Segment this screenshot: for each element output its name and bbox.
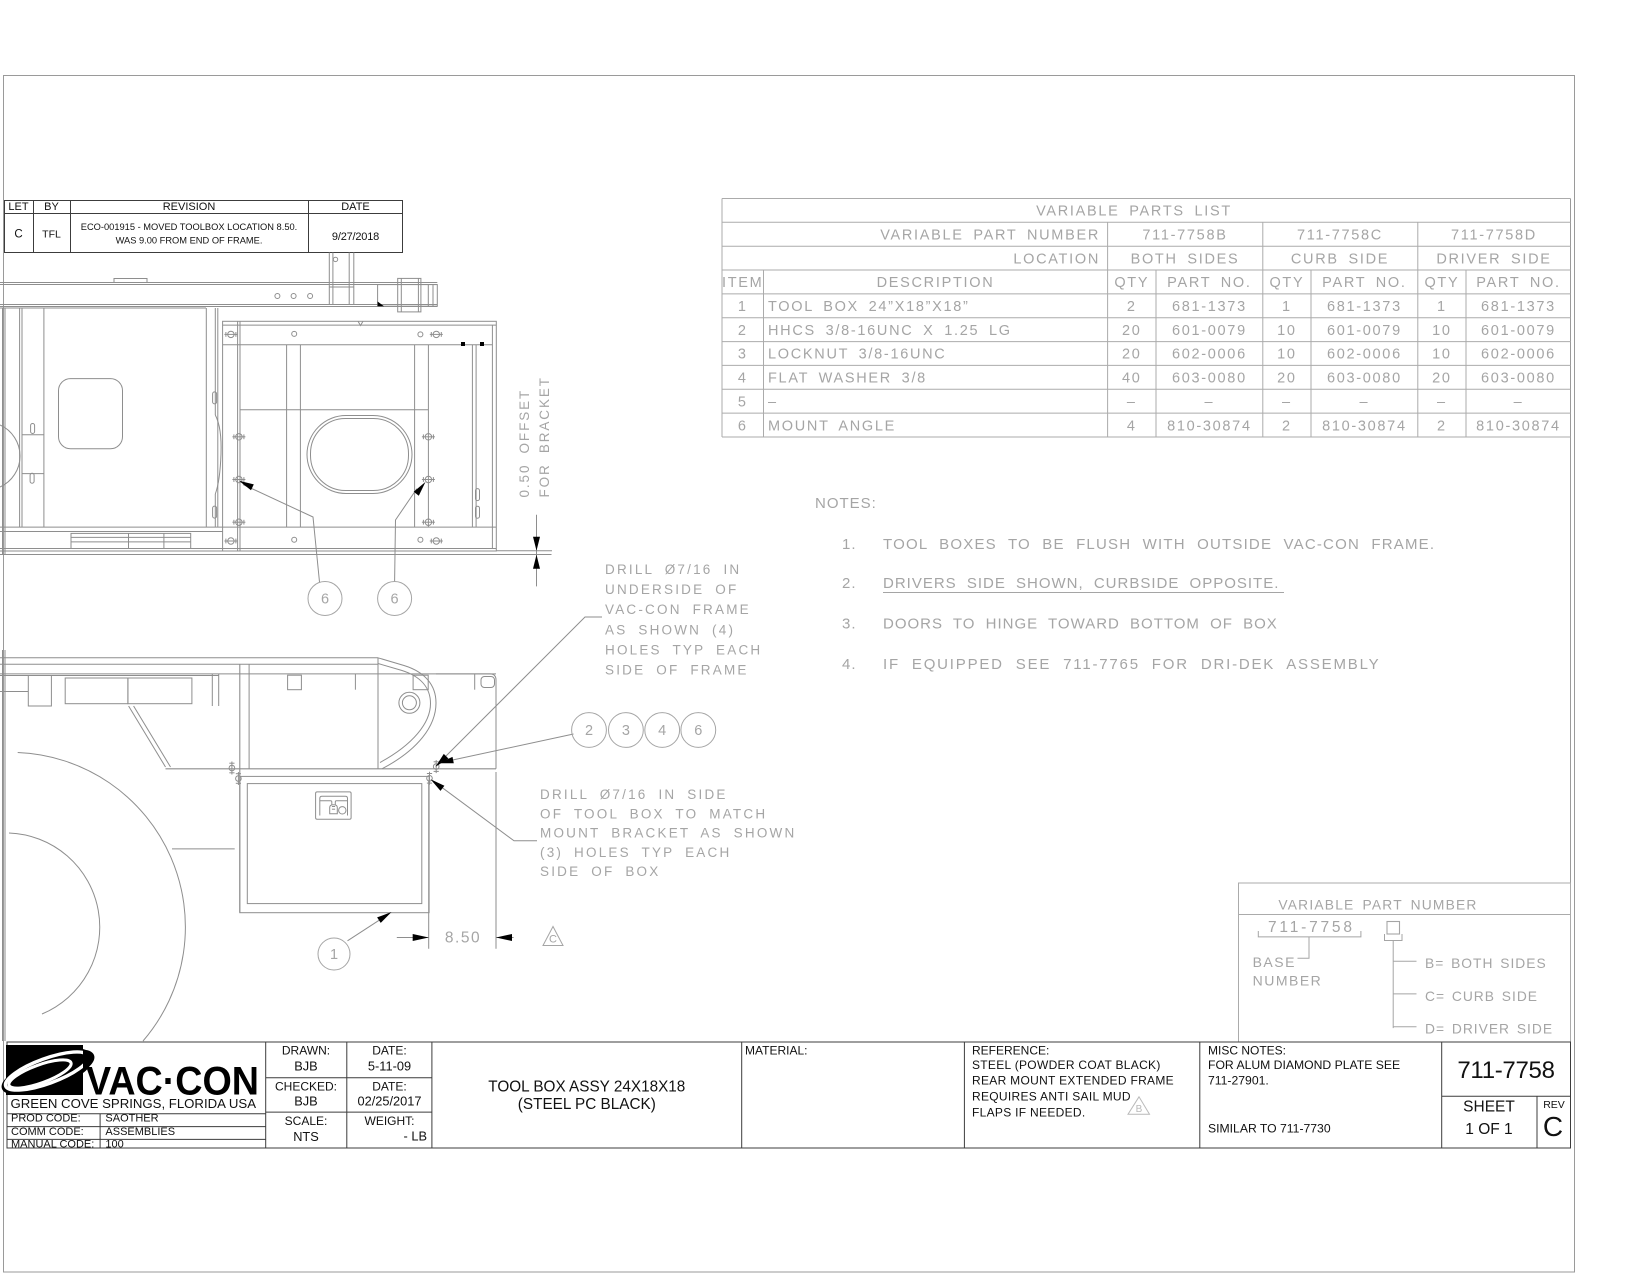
svg-text:681-1373: 681-1373 [1327,299,1402,315]
svg-text:6: 6 [738,418,748,434]
svg-text:DOORS TO HINGE TOWARD BOTTOM O: DOORS TO HINGE TOWARD BOTTOM OF BOX [883,616,1278,633]
svg-text:601-0079: 601-0079 [1327,323,1402,339]
svg-text:–: – [768,394,778,410]
svg-text:FLAT WASHER 3/8: FLAT WASHER 3/8 [768,371,927,387]
svg-text:PART NO.: PART NO. [1167,275,1251,291]
svg-text:2: 2 [585,723,593,739]
svg-text:BOTH SIDES: BOTH SIDES [1131,251,1240,267]
svg-text:5: 5 [738,394,748,410]
svg-text:C: C [1543,1111,1563,1142]
svg-text:2: 2 [1437,418,1447,434]
svg-text:100: 100 [105,1138,123,1150]
svg-text:6: 6 [321,592,329,608]
svg-text:6: 6 [391,592,399,608]
svg-text:VARIABLE PART NUMBER: VARIABLE PART NUMBER [880,227,1100,243]
svg-text:LOCATION: LOCATION [1013,251,1100,267]
svg-text:1: 1 [330,947,338,963]
svg-text:- LB: - LB [404,1128,427,1143]
svg-text:10: 10 [1432,347,1452,363]
svg-text:2.: 2. [842,575,857,592]
svg-text:REFERENCE:: REFERENCE: [972,1043,1049,1057]
svg-text:COMM CODE:: COMM CODE: [11,1126,84,1138]
svg-text:ITEM: ITEM [722,275,763,291]
svg-text:NUMBER: NUMBER [1253,972,1323,988]
svg-text:SHEET: SHEET [1463,1099,1515,1116]
svg-text:REV: REV [1543,1099,1565,1111]
svg-text:SIDE OF BOX: SIDE OF BOX [540,864,660,879]
svg-text:711-7758: 711-7758 [1457,1057,1554,1084]
svg-text:3: 3 [622,723,630,739]
svg-text:–: – [1437,394,1447,410]
svg-text:1: 1 [1437,299,1447,315]
svg-text:3: 3 [738,347,748,363]
svg-text:HOLES TYP EACH: HOLES TYP EACH [605,642,762,657]
svg-text:711-7758C: 711-7758C [1297,227,1383,243]
svg-text:SIDE OF FRAME: SIDE OF FRAME [605,663,749,678]
svg-text:681-1373: 681-1373 [1481,299,1556,315]
svg-text:9/27/2018: 9/27/2018 [332,231,379,243]
svg-text:MOUNT ANGLE: MOUNT ANGLE [768,418,896,434]
svg-text:B: B [1136,1104,1143,1115]
svg-text:NOTES:: NOTES: [815,495,877,512]
svg-text:LOCKNUT 3/8-16UNC: LOCKNUT 3/8-16UNC [768,347,946,363]
svg-text:602-0006: 602-0006 [1481,347,1556,363]
svg-text:40: 40 [1122,371,1142,387]
svg-text:0.50 OFFSET: 0.50 OFFSET [517,389,532,498]
svg-text:BASE: BASE [1253,954,1296,970]
svg-text:10: 10 [1277,323,1297,339]
svg-text:TOOL BOXES TO BE FLUSH WITH OU: TOOL BOXES TO BE FLUSH WITH OUTSIDE VAC-… [883,536,1435,553]
svg-text:VARIABLE PART NUMBER: VARIABLE PART NUMBER [1278,898,1477,913]
svg-text:MATERIAL:: MATERIAL: [745,1043,807,1057]
svg-text:UNDERSIDE OF: UNDERSIDE OF [605,582,738,597]
svg-text:CURB SIDE: CURB SIDE [1291,251,1389,267]
svg-text:4: 4 [658,723,666,739]
svg-text:DATE:: DATE: [372,1043,406,1057]
svg-text:DRAWN:: DRAWN: [282,1043,330,1057]
svg-text:DATE: DATE [341,201,370,213]
svg-text:1.: 1. [842,536,857,553]
svg-text:602-0006: 602-0006 [1327,347,1402,363]
svg-text:–: – [1127,394,1137,410]
svg-text:2: 2 [738,323,748,339]
svg-text:ECO-001915 - MOVED TOOLBOX LOC: ECO-001915 - MOVED TOOLBOX LOCATION 8.50… [81,222,298,232]
svg-text:6: 6 [694,723,702,739]
svg-text:PROD CODE:: PROD CODE: [11,1113,81,1125]
svg-text:TOOL BOX ASSY 24X18X18: TOOL BOX ASSY 24X18X18 [488,1079,685,1096]
svg-text:TFL: TFL [42,229,61,241]
svg-text:IF EQUIPPED SEE 711-7765 FOR D: IF EQUIPPED SEE 711-7765 FOR DRI-DEK ASS… [883,656,1380,673]
svg-text:HHCS 3/8-16UNC X 1.25 LG: HHCS 3/8-16UNC X 1.25 LG [768,323,1012,339]
svg-text:AS SHOWN (4): AS SHOWN (4) [605,622,735,637]
svg-text:DRILL Ø7/16 IN: DRILL Ø7/16 IN [605,562,741,577]
svg-text:20: 20 [1122,323,1142,339]
svg-text:DESCRIPTION: DESCRIPTION [877,275,995,291]
svg-text:TOOL BOX 24”X18”X18”: TOOL BOX 24”X18”X18” [768,299,970,315]
svg-text:BY: BY [44,201,59,213]
svg-text:CHECKED:: CHECKED: [275,1080,337,1094]
svg-text:REAR MOUNT EXTENDED FRAME: REAR MOUNT EXTENDED FRAME [972,1074,1174,1088]
svg-text:601-0079: 601-0079 [1481,323,1556,339]
svg-text:602-0006: 602-0006 [1172,347,1247,363]
svg-text:DRIVERS SIDE SHOWN, CURBSIDE O: DRIVERS SIDE SHOWN, CURBSIDE OPPOSITE. [883,575,1279,592]
svg-text:711-7758B: 711-7758B [1142,227,1227,243]
svg-text:10: 10 [1432,323,1452,339]
svg-text:D= DRIVER SIDE: D= DRIVER SIDE [1425,1022,1553,1037]
svg-text:4: 4 [1127,418,1137,434]
svg-text:4.: 4. [842,656,857,673]
svg-text:20: 20 [1432,371,1452,387]
svg-text:C: C [14,229,22,241]
svg-text:C= CURB SIDE: C= CURB SIDE [1425,989,1538,1004]
svg-text:603-0080: 603-0080 [1327,371,1402,387]
svg-text:MANUAL CODE:: MANUAL CODE: [11,1138,94,1150]
svg-text:BJB: BJB [294,1093,317,1108]
svg-text:FLAPS IF NEEDED.: FLAPS IF NEEDED. [972,1106,1086,1120]
svg-text:20: 20 [1122,347,1142,363]
svg-text:1: 1 [738,299,748,315]
svg-text:02/25/2017: 02/25/2017 [357,1093,421,1108]
svg-text:LET: LET [8,201,28,213]
svg-text:OF TOOL BOX TO MATCH: OF TOOL BOX TO MATCH [540,806,767,821]
svg-text:4: 4 [738,371,748,387]
svg-text:REVISION: REVISION [163,201,216,213]
svg-text:810-30874: 810-30874 [1322,418,1407,434]
svg-text:2: 2 [1127,299,1137,315]
svg-text:3.: 3. [842,616,857,633]
svg-text:5-11-09: 5-11-09 [368,1059,411,1074]
svg-text:VAC-CON FRAME: VAC-CON FRAME [605,602,751,617]
svg-text:2: 2 [1282,418,1292,434]
svg-text:711-27901.: 711-27901. [1208,1074,1269,1088]
svg-text:MISC NOTES:: MISC NOTES: [1208,1043,1286,1057]
svg-text:ASSEMBLIES: ASSEMBLIES [105,1126,175,1138]
svg-text:BJB: BJB [294,1059,317,1074]
svg-text:–: – [1282,394,1292,410]
svg-text:SIMILAR TO 711-7730: SIMILAR TO 711-7730 [1208,1121,1331,1135]
svg-text:681-1373: 681-1373 [1172,299,1247,315]
svg-text:(STEEL PC BLACK): (STEEL PC BLACK) [518,1096,656,1113]
svg-text:–: – [1514,394,1524,410]
svg-text:DATE:: DATE: [372,1080,406,1094]
svg-text:WEIGHT:: WEIGHT: [365,1114,415,1128]
svg-text:QTY: QTY [1269,275,1304,291]
svg-text:FOR ALUM DIAMOND PLATE SEE: FOR ALUM DIAMOND PLATE SEE [1208,1058,1400,1072]
svg-text:B= BOTH SIDES: B= BOTH SIDES [1425,956,1547,971]
svg-text:1 OF 1: 1 OF 1 [1465,1121,1512,1138]
svg-text:601-0079: 601-0079 [1172,323,1247,339]
svg-text:FOR BRACKET: FOR BRACKET [537,376,552,497]
svg-text:810-30874: 810-30874 [1476,418,1561,434]
svg-text:603-0080: 603-0080 [1481,371,1556,387]
svg-text:603-0080: 603-0080 [1172,371,1247,387]
svg-text:20: 20 [1277,371,1297,387]
svg-text:QTY: QTY [1114,275,1149,291]
svg-text:–: – [1360,394,1370,410]
svg-text:C: C [549,934,557,946]
svg-text:–: – [1205,394,1215,410]
svg-text:SAOTHER: SAOTHER [105,1113,158,1125]
svg-text:SCALE:: SCALE: [285,1114,328,1128]
svg-text:(3) HOLES TYP EACH: (3) HOLES TYP EACH [540,845,731,860]
svg-text:STEEL (POWDER COAT BLACK): STEEL (POWDER COAT BLACK) [972,1058,1161,1072]
svg-text:VARIABLE PARTS LIST: VARIABLE PARTS LIST [1036,204,1232,220]
svg-text:DRIVER SIDE: DRIVER SIDE [1436,251,1551,267]
svg-text:711-7758: 711-7758 [1268,919,1355,936]
svg-text:NTS: NTS [293,1129,319,1144]
svg-text:PART NO.: PART NO. [1322,275,1406,291]
svg-text:REQUIRES ANTI SAIL MUD: REQUIRES ANTI SAIL MUD [972,1090,1131,1104]
svg-text:GREEN COVE SPRINGS, FLORIDA US: GREEN COVE SPRINGS, FLORIDA USA [11,1096,257,1111]
svg-text:MOUNT BRACKET AS SHOWN: MOUNT BRACKET AS SHOWN [540,826,796,841]
svg-text:QTY: QTY [1424,275,1459,291]
svg-text:DRILL Ø7/16 IN SIDE: DRILL Ø7/16 IN SIDE [540,787,728,802]
svg-text:711-7758D: 711-7758D [1451,227,1537,243]
svg-text:810-30874: 810-30874 [1167,418,1252,434]
svg-text:WAS 9.00 FROM END OF FRAME.: WAS 9.00 FROM END OF FRAME. [116,236,263,246]
svg-text:PART NO.: PART NO. [1476,275,1560,291]
svg-text:8.50: 8.50 [445,930,481,947]
svg-text:1: 1 [1282,299,1292,315]
svg-text:10: 10 [1277,347,1297,363]
